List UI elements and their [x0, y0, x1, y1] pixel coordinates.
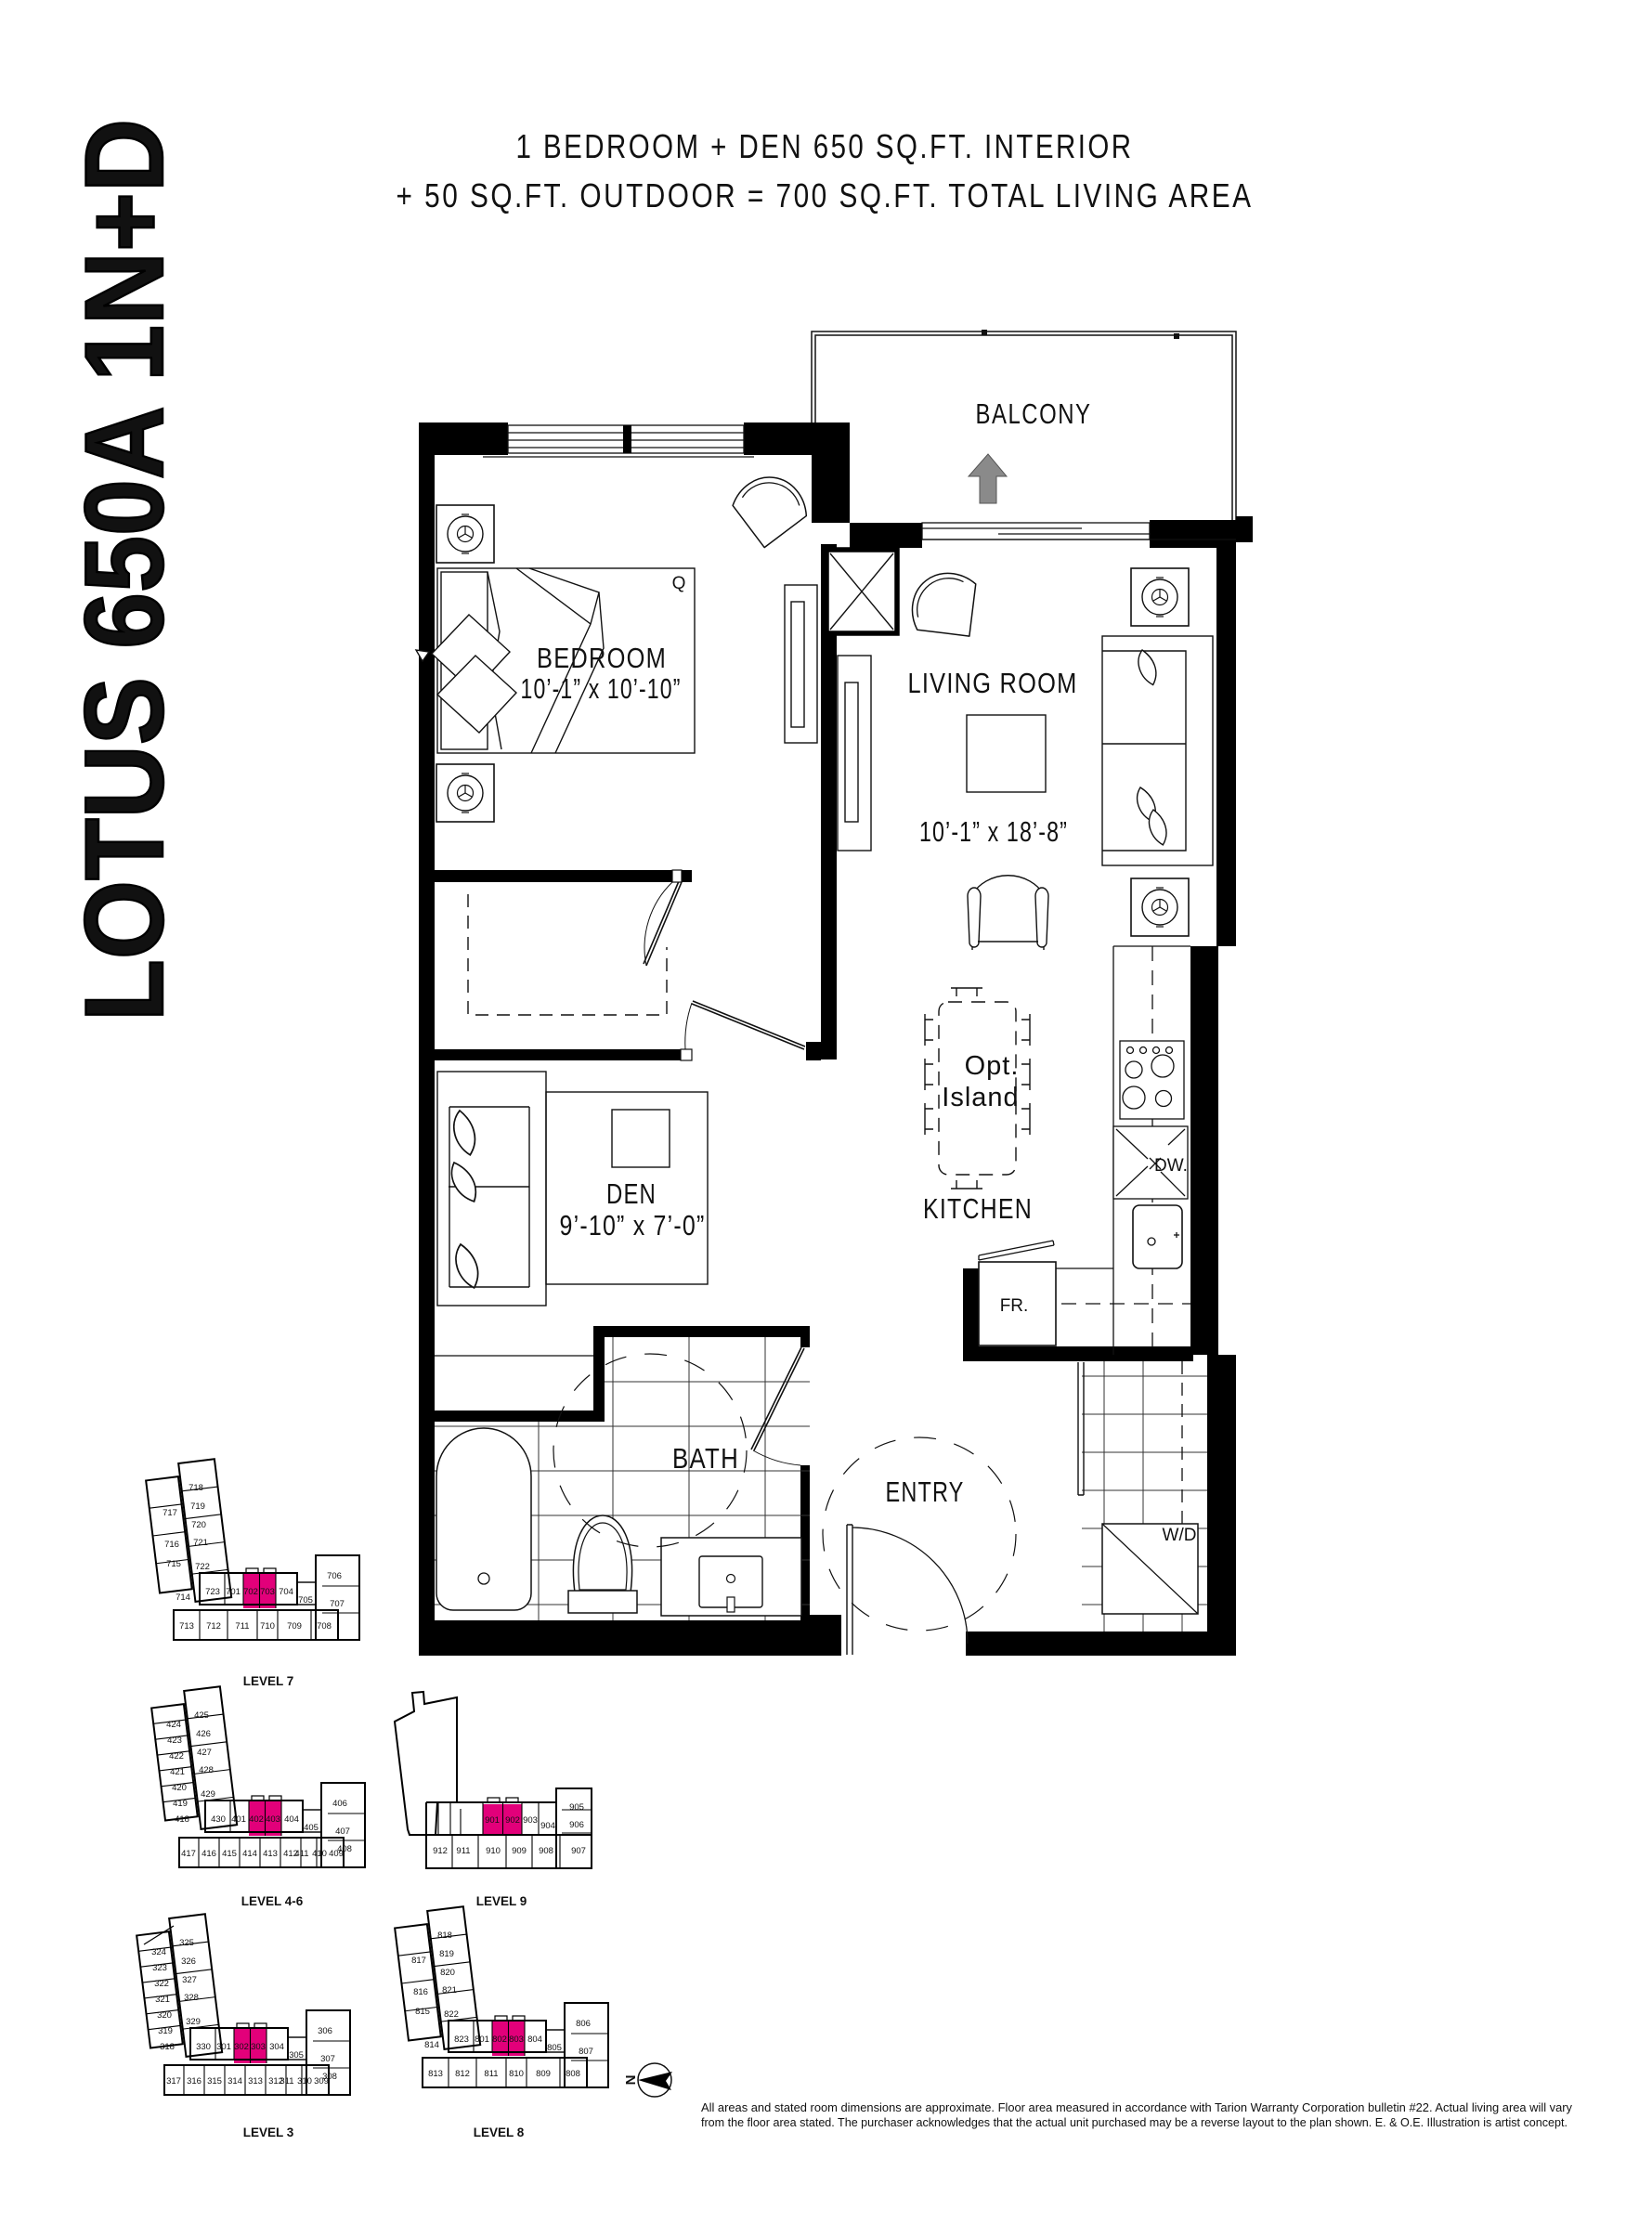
svg-text:LOTUS 650A 1N+D: LOTUS 650A 1N+D	[62, 119, 187, 1021]
svg-text:807: 807	[579, 2047, 593, 2057]
svg-text:317: 317	[166, 2076, 181, 2086]
svg-text:720: 720	[191, 1520, 206, 1530]
svg-text:715: 715	[166, 1559, 181, 1569]
svg-text:822: 822	[444, 2009, 459, 2020]
svg-text:313: 313	[248, 2076, 263, 2086]
svg-text:416: 416	[202, 1849, 216, 1859]
svg-text:421: 421	[170, 1767, 185, 1777]
svg-text:BALCONY: BALCONY	[976, 397, 1092, 430]
svg-text:DEN: DEN	[606, 1177, 657, 1210]
svg-text:423: 423	[167, 1735, 182, 1746]
svg-text:324: 324	[151, 1947, 166, 1957]
svg-text:806: 806	[576, 2019, 591, 2029]
svg-text:818: 818	[437, 1930, 452, 1941]
svg-text:302: 302	[234, 2042, 249, 2052]
svg-text:406: 406	[332, 1799, 347, 1809]
svg-text:813: 813	[428, 2069, 443, 2079]
svg-text:10’-1” x 18’-8”: 10’-1” x 18’-8”	[919, 815, 1068, 848]
svg-text:908: 908	[539, 1846, 553, 1856]
svg-text:713: 713	[179, 1621, 194, 1631]
svg-text:721: 721	[193, 1538, 208, 1548]
svg-text:703: 703	[260, 1587, 275, 1597]
svg-text:816: 816	[413, 1987, 428, 1997]
svg-text:326: 326	[181, 1956, 196, 1967]
svg-text:424: 424	[166, 1720, 181, 1730]
svg-text:401: 401	[231, 1814, 246, 1825]
svg-text:717: 717	[163, 1508, 177, 1518]
svg-text:906: 906	[569, 1820, 584, 1830]
svg-text:LEVEL 8: LEVEL 8	[474, 2125, 525, 2139]
svg-text:FR.: FR.	[1000, 1296, 1029, 1316]
svg-text:809: 809	[536, 2069, 551, 2079]
svg-text:315: 315	[207, 2076, 222, 2086]
svg-text:812: 812	[455, 2069, 470, 2079]
svg-text:719: 719	[190, 1501, 205, 1512]
svg-text:706: 706	[327, 1571, 342, 1581]
svg-text:321: 321	[155, 1995, 170, 2005]
svg-text:704: 704	[279, 1587, 293, 1597]
svg-text:418: 418	[175, 1814, 189, 1825]
svg-text:309: 309	[314, 2076, 329, 2086]
svg-text:907: 907	[571, 1846, 586, 1856]
svg-text:404: 404	[284, 1814, 299, 1825]
svg-text:330: 330	[196, 2042, 211, 2052]
svg-text:402: 402	[249, 1814, 264, 1825]
svg-text:BEDROOM: BEDROOM	[537, 642, 667, 674]
svg-text:325: 325	[179, 1938, 194, 1948]
svg-text:430: 430	[211, 1814, 226, 1825]
svg-text:ENTRY: ENTRY	[886, 1475, 965, 1508]
svg-text:712: 712	[206, 1621, 221, 1631]
svg-text:823: 823	[454, 2034, 469, 2045]
svg-text:316: 316	[187, 2076, 202, 2086]
svg-text:808: 808	[566, 2069, 580, 2079]
svg-text:LEVEL 3: LEVEL 3	[243, 2125, 294, 2139]
svg-text:427: 427	[197, 1748, 212, 1758]
svg-text:819: 819	[439, 1949, 454, 1959]
svg-text:805: 805	[547, 2043, 562, 2053]
svg-text:815: 815	[415, 2007, 430, 2017]
svg-text:411: 411	[294, 1849, 308, 1859]
svg-text:911: 911	[456, 1846, 470, 1856]
svg-text:905: 905	[569, 1802, 584, 1813]
svg-text:407: 407	[335, 1826, 350, 1837]
svg-text:716: 716	[164, 1540, 179, 1550]
svg-text:Q: Q	[672, 574, 686, 593]
svg-text:422: 422	[169, 1751, 184, 1761]
svg-text:710: 710	[260, 1621, 275, 1631]
svg-text:322: 322	[154, 1979, 169, 1989]
svg-text:N: N	[623, 2075, 639, 2086]
svg-text:714: 714	[176, 1592, 190, 1603]
svg-text:305: 305	[289, 2050, 304, 2060]
svg-text:810: 810	[509, 2069, 524, 2079]
svg-text:707: 707	[330, 1599, 345, 1609]
svg-text:from the floor area stated. Th: from the floor area stated. The purchase…	[701, 2115, 1567, 2129]
svg-text:306: 306	[318, 2026, 332, 2036]
svg-text:902: 902	[505, 1815, 520, 1826]
svg-text:328: 328	[184, 1993, 199, 2003]
svg-text:814: 814	[424, 2040, 439, 2050]
svg-text:413: 413	[263, 1849, 278, 1859]
svg-text:LEVEL 9: LEVEL 9	[476, 1894, 527, 1908]
svg-text:415: 415	[222, 1849, 237, 1859]
svg-text:323: 323	[152, 1963, 167, 1973]
svg-text:802: 802	[492, 2034, 507, 2045]
svg-text:425: 425	[194, 1710, 209, 1721]
svg-text:319: 319	[158, 2026, 173, 2036]
svg-text:414: 414	[242, 1849, 257, 1859]
svg-text:310: 310	[297, 2076, 312, 2086]
svg-text:LEVEL 4-6: LEVEL 4-6	[241, 1894, 304, 1908]
svg-text:LEVEL 7: LEVEL 7	[243, 1674, 294, 1688]
svg-text:817: 817	[411, 1956, 426, 1966]
svg-text:1 BEDROOM + DEN 650 SQ.FT. INT: 1 BEDROOM + DEN 650 SQ.FT. INTERIOR	[516, 127, 1134, 165]
svg-text:LIVING ROOM: LIVING ROOM	[908, 667, 1078, 699]
svg-text:314: 314	[228, 2076, 242, 2086]
svg-text:318: 318	[160, 2042, 175, 2052]
svg-text:702: 702	[243, 1587, 258, 1597]
svg-text:+ 50 SQ.FT. OUTDOOR = 700 SQ.F: + 50 SQ.FT. OUTDOOR = 700 SQ.FT. TOTAL L…	[397, 176, 1254, 214]
svg-text:320: 320	[157, 2010, 172, 2021]
svg-text:BATH: BATH	[672, 1442, 739, 1475]
svg-text:307: 307	[320, 2054, 335, 2064]
svg-text:701: 701	[226, 1587, 241, 1597]
svg-text:311: 311	[280, 2076, 293, 2086]
svg-text:801: 801	[475, 2034, 489, 2045]
svg-text:709: 709	[287, 1621, 302, 1631]
svg-text:420: 420	[172, 1783, 187, 1793]
svg-text:403: 403	[266, 1814, 280, 1825]
svg-text:723: 723	[205, 1587, 220, 1597]
svg-text:419: 419	[173, 1799, 188, 1809]
svg-text:409: 409	[329, 1849, 344, 1859]
svg-text:821: 821	[442, 1985, 457, 1995]
svg-text:708: 708	[317, 1621, 332, 1631]
svg-text:327: 327	[182, 1975, 197, 1985]
svg-text:904: 904	[540, 1821, 555, 1831]
svg-text:10’-1” x 10’-10”: 10’-1” x 10’-10”	[521, 672, 682, 705]
svg-text:803: 803	[509, 2034, 524, 2045]
svg-text:410: 410	[312, 1849, 327, 1859]
svg-text:722: 722	[195, 1562, 210, 1572]
svg-text:912: 912	[433, 1846, 448, 1856]
svg-text:Island: Island	[942, 1083, 1019, 1112]
svg-text:9’-10” x 7’-0”: 9’-10” x 7’-0”	[560, 1209, 706, 1241]
svg-text:718: 718	[189, 1483, 203, 1493]
svg-text:W/D: W/D	[1163, 1526, 1197, 1545]
svg-text:903: 903	[523, 1815, 538, 1826]
svg-text:329: 329	[186, 2017, 201, 2027]
svg-text:All areas and stated room dime: All areas and stated room dimensions are…	[701, 2100, 1572, 2114]
svg-text:DW.: DW.	[1154, 1156, 1188, 1176]
svg-text:428: 428	[199, 1765, 214, 1775]
svg-text:910: 910	[486, 1846, 501, 1856]
svg-text:820: 820	[440, 1968, 455, 1978]
svg-text:901: 901	[485, 1815, 500, 1826]
svg-text:304: 304	[269, 2042, 284, 2052]
svg-text:303: 303	[251, 2042, 266, 2052]
svg-text:705: 705	[298, 1595, 313, 1605]
svg-text:417: 417	[181, 1849, 196, 1859]
svg-text:804: 804	[527, 2034, 542, 2045]
svg-text:Opt.: Opt.	[965, 1051, 1020, 1081]
svg-text:405: 405	[304, 1823, 319, 1833]
svg-text:KITCHEN: KITCHEN	[923, 1192, 1033, 1225]
svg-text:711: 711	[235, 1621, 249, 1631]
svg-text:429: 429	[201, 1789, 215, 1800]
svg-text:811: 811	[484, 2069, 498, 2079]
svg-text:909: 909	[512, 1846, 527, 1856]
svg-text:301: 301	[216, 2042, 231, 2052]
svg-text:426: 426	[196, 1729, 211, 1739]
